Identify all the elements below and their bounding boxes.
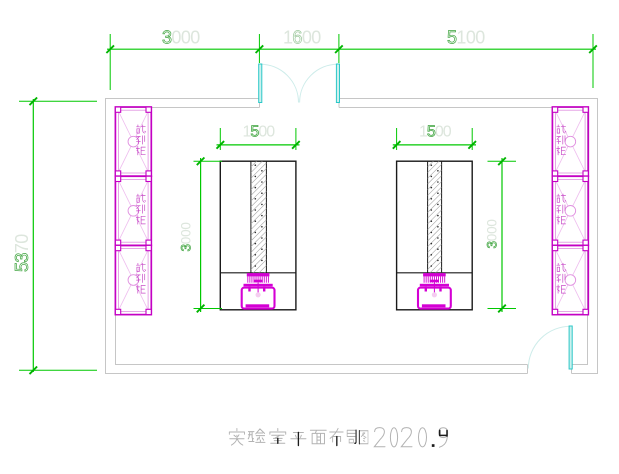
svg-text:3000: 3000	[485, 219, 500, 248]
svg-text:1500: 1500	[243, 124, 276, 141]
svg-text:3000: 3000	[162, 28, 200, 48]
svg-text:5370: 5370	[12, 234, 32, 272]
svg-text:1600: 1600	[283, 28, 321, 48]
svg-text:5100: 5100	[447, 28, 485, 48]
svg-text:3000: 3000	[179, 222, 194, 251]
svg-text:1500: 1500	[419, 124, 452, 141]
